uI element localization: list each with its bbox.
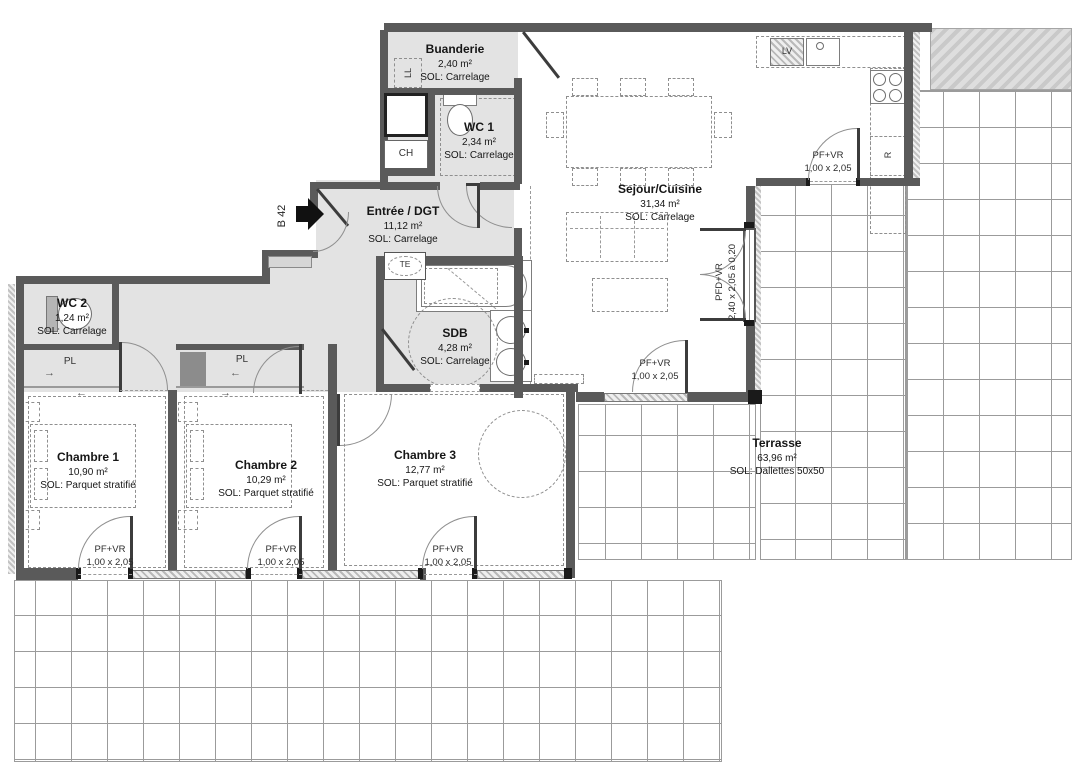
room-label-sdb: SDB 4,28 m² SOL: Carrelage: [395, 326, 515, 368]
terrace-grid-mid: [760, 184, 906, 560]
wall-corridor-top: [16, 276, 266, 284]
burner: [889, 73, 902, 86]
room-area: 10,90 m²: [68, 466, 107, 479]
door-post: [744, 222, 754, 228]
room-area: 31,34 m²: [640, 198, 679, 211]
unit-label: B 42: [276, 194, 290, 238]
room-name: Buanderie: [426, 42, 485, 58]
chair: [668, 78, 694, 96]
burner: [873, 73, 886, 86]
opening-size: 1,00 x 2,05: [243, 557, 319, 570]
room-name: WC 1: [464, 120, 494, 136]
wall-kitchen-terrace-right: [860, 178, 920, 186]
wall-sdb-left: [376, 256, 384, 392]
door-threshold: [120, 390, 168, 391]
room-name: Sejour/Cuisine: [618, 182, 702, 198]
sofa-seam: [570, 228, 664, 229]
nightstand: [178, 510, 198, 530]
wall-kitchen-right: [904, 32, 913, 186]
kitchen-sink: [806, 38, 840, 66]
terrace-grid-inner: [578, 404, 756, 560]
wall-kitchen-terrace-left: [756, 178, 806, 186]
opening-size: 1,00 x 2,05: [410, 557, 486, 570]
opening-label-ch1: PF+VR 1,00 x 2,05: [72, 544, 148, 570]
door-threshold: [302, 390, 328, 391]
opening-type: PF+VR: [243, 544, 319, 557]
room-label-wc1: WC 1 2,34 m² SOL: Carrelage: [418, 120, 540, 162]
room-area: 10,29 m²: [246, 474, 285, 487]
wall-left-lining: [8, 284, 15, 574]
wall-sdb-bottom-left: [376, 384, 430, 392]
room-floor: SOL: Parquet stratifié: [218, 487, 314, 500]
opening-type: PF+VR: [617, 358, 693, 371]
room-area: 12,77 m²: [405, 464, 444, 477]
entry-step: [268, 256, 312, 268]
room-area: 4,28 m²: [438, 342, 472, 355]
room-name: SDB: [442, 326, 467, 342]
room-floor: SOL: Carrelage: [420, 355, 489, 368]
nightstand: [178, 402, 198, 422]
room-floor: SOL: Carrelage: [420, 71, 489, 84]
opening-size: 2,40 x 2,05 à 0,20: [727, 217, 740, 347]
room-area: 63,96 m²: [757, 452, 796, 465]
room-floor: SOL: Dallettes 50x50: [730, 465, 825, 478]
dishwasher-label: LV: [774, 46, 800, 56]
opening-size: 1,00 x 2,05: [790, 163, 866, 176]
room-area: 2,34 m²: [462, 136, 496, 149]
burner: [873, 89, 886, 102]
sink-faucet: [816, 42, 824, 50]
door-threshold: [251, 574, 302, 575]
room-floor: SOL: Parquet stratifié: [377, 477, 473, 490]
room-label-terrasse: Terrasse 63,96 m² SOL: Dallettes 50x50: [713, 436, 841, 478]
room-label-ch2: Chambre 2 10,29 m² SOL: Parquet stratifi…: [206, 458, 326, 500]
room-floor: SOL: Carrelage: [368, 233, 437, 246]
closet1-arrow-out: ←: [76, 388, 87, 399]
opening-type: PF+VR: [790, 150, 866, 163]
sdb-threshold: [430, 384, 480, 392]
closet2-arrow-in: ←: [230, 368, 241, 379]
window-sill-ch1: [132, 570, 246, 579]
wall-wc1-bottom-left: [380, 182, 440, 190]
room-name: Chambre 1: [57, 450, 119, 466]
entry-arrow-head: [308, 198, 324, 230]
basin-faucet: [524, 360, 529, 365]
chair: [572, 78, 598, 96]
room-area: 11,12 m²: [384, 220, 423, 233]
entry-arrow-tail: [296, 206, 308, 222]
floor-plan: LV R LL PL → ← PL ← →: [0, 0, 1081, 778]
wall-ch3-right: [566, 388, 575, 578]
door-post: [744, 320, 754, 326]
coffee-table: [592, 278, 668, 312]
turning-circle-ch3: [478, 410, 566, 498]
wall-top: [384, 23, 932, 32]
room-name: WC 2: [57, 296, 87, 312]
opening-label-kitchen: PF+VR 1,00 x 2,05: [790, 150, 866, 176]
terrace-corner-post: [748, 390, 762, 404]
terrace-grid-right: [906, 90, 1072, 560]
room-area: 2,40 m²: [438, 58, 472, 71]
room-name: Chambre 3: [394, 448, 456, 464]
closet1-arrow-in: →: [44, 368, 55, 379]
opening-type: PF+VR: [410, 544, 486, 557]
burner: [889, 89, 902, 102]
wall-sejour-bottom-left: [576, 392, 604, 402]
room-label-entree: Entrée / DGT 11,12 m² SOL: Carrelage: [338, 204, 468, 246]
wall-divider-ch2-ch3: [328, 344, 337, 578]
dining-table: [566, 96, 712, 168]
door-post: [418, 568, 423, 579]
room-floor: SOL: Carrelage: [625, 211, 694, 224]
electrical-panel-label: TE: [390, 259, 420, 269]
opening-size: 1,00 x 2,05: [72, 557, 148, 570]
wall-sdb-bottom-right: [480, 384, 523, 392]
room-label-sejour: Sejour/Cuisine 31,34 m² SOL: Carrelage: [595, 182, 725, 224]
door-threshold: [78, 574, 132, 575]
door-leaf-buanderie: [522, 31, 560, 78]
terrace-grid-bottom: [14, 580, 722, 762]
door-leaf-ch2: [299, 344, 302, 394]
room-label-ch3: Chambre 3 12,77 m² SOL: Parquet stratifi…: [364, 448, 486, 490]
chair: [620, 78, 646, 96]
fridge-label: R: [883, 147, 893, 163]
window-sill-ch2: [302, 570, 420, 579]
door-leaf-wc1: [477, 184, 480, 228]
window-sill-sejour: [604, 393, 688, 402]
door-post: [564, 568, 572, 579]
opening-label-ch3: PF+VR 1,00 x 2,05: [410, 544, 486, 570]
wall-divider-ch1-ch2: [168, 390, 177, 578]
opening-label-pfd: PFD+VR 2,40 x 2,05 à 0,20: [714, 217, 742, 347]
opening-label-ch2: PF+VR 1,00 x 2,05: [243, 544, 319, 570]
closet1-label: PL: [52, 356, 88, 367]
room-floor: SOL: Carrelage: [444, 149, 513, 162]
door-threshold: [810, 181, 856, 182]
wall-wc1-bottom-right: [480, 182, 520, 190]
bed-pillow: [190, 468, 204, 500]
neighbor-hatched-block: [930, 28, 1072, 90]
opening-label-sejour: PF+VR 1,00 x 2,05: [617, 358, 693, 384]
room-label-wc2: WC 2 1,24 m² SOL: Carrelage: [22, 296, 122, 338]
room-floor: SOL: Carrelage: [37, 325, 106, 338]
chair: [546, 112, 564, 138]
wall-kitchen-right-lining: [913, 32, 920, 186]
bed-pillow: [190, 430, 204, 462]
room-area: 1,24 m²: [55, 312, 89, 325]
wall-sdb-right: [514, 258, 523, 398]
radiator: [534, 374, 584, 384]
opening-type: PFD+VR: [714, 217, 727, 347]
room-name: Entrée / DGT: [367, 204, 440, 220]
wall-bedroom-bottom-a: [16, 568, 78, 580]
wall-ch-bottom: [380, 168, 435, 176]
room-label-buanderie: Buanderie 2,40 m² SOL: Carrelage: [390, 42, 520, 84]
room-name: Chambre 2: [235, 458, 297, 474]
opening-type: PF+VR: [72, 544, 148, 557]
chair: [714, 112, 732, 138]
room-name: Terrasse: [752, 436, 801, 452]
room-label-ch1: Chambre 1 10,90 m² SOL: Parquet stratifi…: [28, 450, 148, 492]
window-pfd-midline: [749, 230, 750, 320]
opening-size: 1,00 x 2,05: [617, 371, 693, 384]
closet2-column: [180, 352, 206, 386]
door-threshold: [424, 574, 477, 575]
wall-sejour-bottom-right: [688, 392, 748, 402]
closet2-label: PL: [224, 354, 260, 365]
closet2-arrow-out: →: [220, 388, 231, 399]
closet1-front: [20, 386, 120, 388]
room-floor: SOL: Parquet stratifié: [40, 479, 136, 492]
basin-faucet: [524, 328, 529, 333]
closet1-wall: [20, 344, 120, 350]
wall-entry-top: [310, 182, 388, 189]
window-sill-ch3: [477, 570, 570, 579]
